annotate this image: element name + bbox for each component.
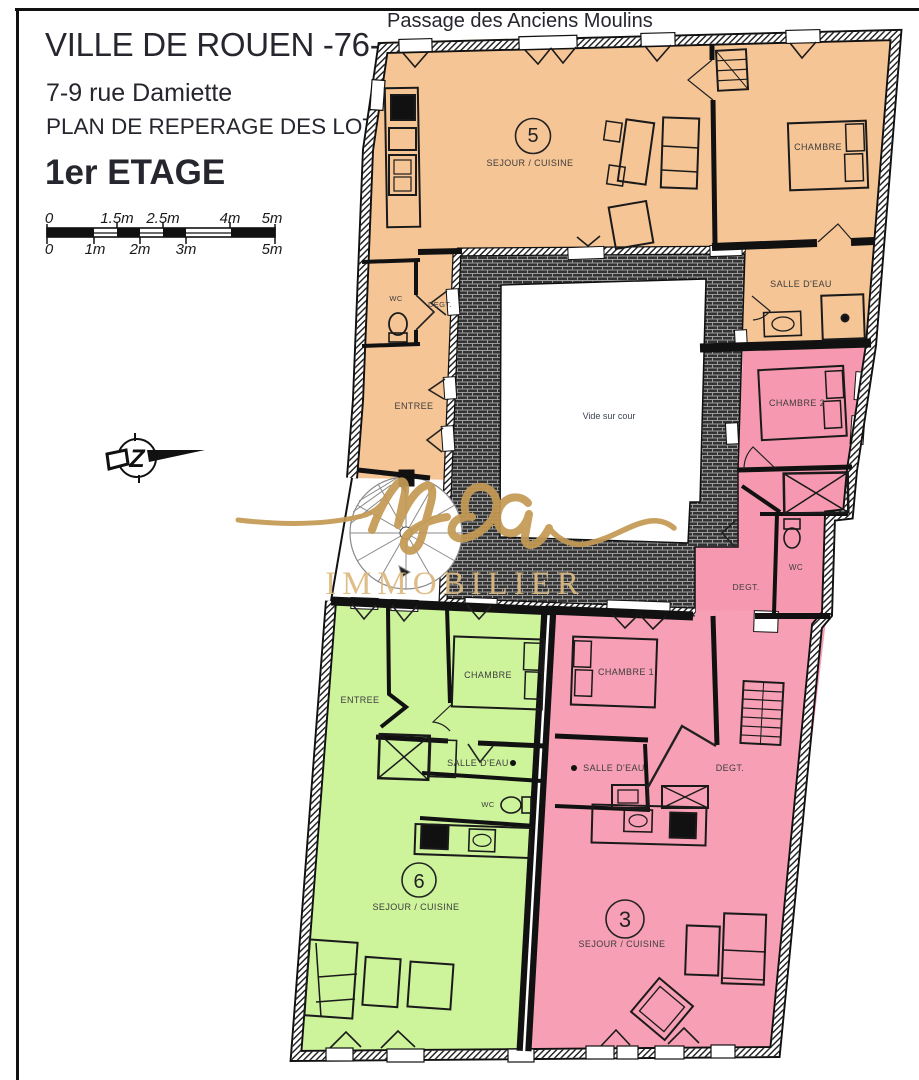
svg-text:CHAMBRE: CHAMBRE — [464, 670, 512, 680]
svg-text:DEGT.: DEGT. — [428, 300, 452, 309]
svg-text:Z: Z — [128, 445, 146, 473]
svg-text:SALLE D'EAU: SALLE D'EAU — [583, 763, 645, 773]
svg-text:7-9 rue Damiette: 7-9 rue Damiette — [46, 79, 232, 107]
svg-text:1m: 1m — [85, 241, 106, 258]
svg-text:3: 3 — [619, 907, 631, 932]
svg-text:SEJOUR / CUISINE: SEJOUR / CUISINE — [373, 902, 460, 912]
svg-text:WC: WC — [389, 294, 402, 303]
svg-text:PLAN DE REPERAGE DES LOTS: PLAN DE REPERAGE DES LOTS — [46, 114, 391, 139]
svg-text:CHAMBRE: CHAMBRE — [794, 142, 842, 152]
svg-text:WC: WC — [481, 800, 494, 809]
svg-text:Vide sur cour: Vide sur cour — [583, 411, 636, 421]
svg-text:0: 0 — [45, 241, 54, 258]
svg-text:ENTREE: ENTREE — [395, 401, 434, 411]
svg-text:SEJOUR / CUISINE: SEJOUR / CUISINE — [487, 158, 574, 168]
svg-text:SALLE D'EAU: SALLE D'EAU — [447, 758, 509, 768]
svg-text:CHAMBRE 2: CHAMBRE 2 — [769, 398, 825, 408]
svg-text:0: 0 — [45, 210, 54, 227]
svg-text:VILLE DE ROUEN -76-: VILLE DE ROUEN -76- — [45, 26, 380, 63]
svg-text:WC: WC — [789, 563, 803, 572]
svg-text:ENTREE: ENTREE — [341, 695, 380, 705]
svg-text:SALLE D'EAU: SALLE D'EAU — [770, 279, 832, 289]
svg-text:5: 5 — [527, 125, 538, 147]
svg-text:5m: 5m — [262, 210, 283, 227]
svg-text:5m: 5m — [262, 241, 283, 258]
svg-text:1er ETAGE: 1er ETAGE — [45, 153, 225, 192]
svg-text:6: 6 — [413, 871, 424, 893]
svg-text:DEGT.: DEGT. — [732, 582, 759, 592]
svg-text:IMMOBILIER: IMMOBILIER — [325, 566, 585, 602]
svg-text:SEJOUR / CUISINE: SEJOUR / CUISINE — [579, 939, 666, 949]
svg-text:CHAMBRE 1: CHAMBRE 1 — [598, 667, 654, 677]
svg-text:DEGT.: DEGT. — [716, 763, 745, 773]
svg-text:Passage des Anciens Moulins: Passage des Anciens Moulins — [387, 10, 653, 32]
